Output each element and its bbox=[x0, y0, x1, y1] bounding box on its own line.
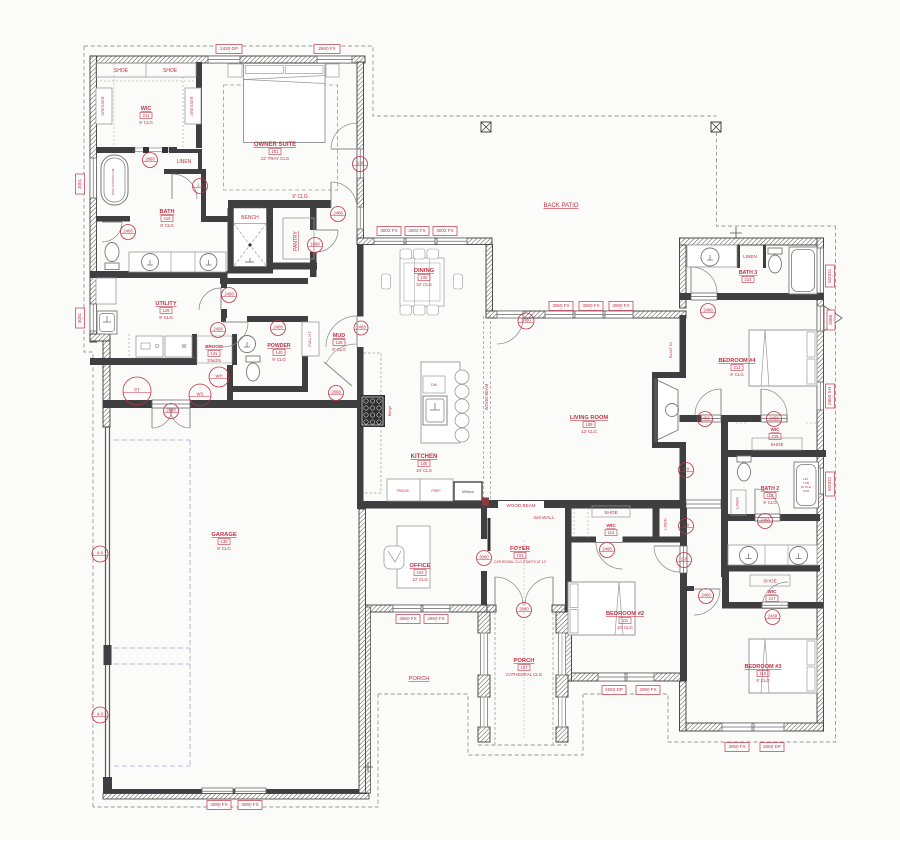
svg-text:BATH: BATH bbox=[159, 209, 174, 215]
svg-text:217: 217 bbox=[769, 596, 777, 601]
svg-text:9' CLG: 9' CLG bbox=[217, 546, 231, 551]
svg-text:129: 129 bbox=[163, 308, 171, 313]
svg-text:CATHEDRAL CLG: CATHEDRAL CLG bbox=[506, 672, 543, 677]
svg-text:FOYER: FOYER bbox=[510, 546, 531, 552]
svg-text:WIC: WIC bbox=[606, 523, 616, 529]
svg-text:2-8: 2-8 bbox=[683, 523, 690, 528]
svg-text:141: 141 bbox=[211, 351, 219, 356]
svg-text:OWNER SUITE: OWNER SUITE bbox=[254, 142, 296, 148]
svg-text:WH: WH bbox=[216, 374, 223, 379]
svg-text:BATH 2: BATH 2 bbox=[761, 486, 779, 492]
svg-text:2468: 2468 bbox=[769, 416, 779, 421]
svg-text:109: 109 bbox=[586, 422, 594, 427]
svg-text:2468: 2468 bbox=[700, 416, 710, 421]
svg-text:2468: 2468 bbox=[760, 518, 770, 523]
svg-text:4-0: 4-0 bbox=[97, 712, 104, 717]
svg-text:103: 103 bbox=[417, 570, 425, 575]
svg-text:4-0: 4-0 bbox=[97, 551, 104, 556]
svg-text:5-0: 5-0 bbox=[683, 467, 690, 472]
svg-text:9' CLG: 9' CLG bbox=[160, 223, 174, 228]
svg-text:2868: 2868 bbox=[166, 408, 176, 413]
svg-text:POWDER: POWDER bbox=[267, 343, 291, 349]
svg-text:SUR: SUR bbox=[803, 489, 810, 493]
svg-text:112: 112 bbox=[608, 530, 615, 535]
svg-text:9' CLG: 9' CLG bbox=[332, 347, 346, 352]
svg-text:2408: 2408 bbox=[123, 229, 133, 234]
svg-text:SHOE: SHOE bbox=[114, 68, 129, 74]
svg-text:SHOE: SHOE bbox=[770, 442, 783, 447]
svg-text:2468: 2468 bbox=[701, 593, 711, 598]
svg-text:BENCH: BENCH bbox=[241, 215, 259, 221]
svg-text:10' CLG: 10' CLG bbox=[617, 625, 634, 630]
svg-text:WOOD BEAM: WOOD BEAM bbox=[484, 383, 489, 410]
svg-text:9' CLG: 9' CLG bbox=[730, 372, 744, 377]
svg-text:107: 107 bbox=[521, 665, 529, 670]
svg-text:111: 111 bbox=[622, 618, 629, 623]
svg-text:BEDROOM #2: BEDROOM #2 bbox=[606, 611, 644, 617]
svg-text:MUD: MUD bbox=[333, 333, 345, 339]
svg-text:WIC: WIC bbox=[141, 106, 152, 112]
svg-text:2468: 2468 bbox=[602, 547, 612, 552]
svg-text:130: 130 bbox=[221, 539, 229, 544]
svg-text:WIC: WIC bbox=[771, 427, 781, 432]
svg-text:215: 215 bbox=[772, 434, 780, 439]
svg-text:106: 106 bbox=[421, 275, 429, 280]
svg-text:FREE STANDING TUB: FREE STANDING TUB bbox=[111, 168, 115, 195]
svg-text:PREP: PREP bbox=[431, 489, 441, 493]
svg-text:2668: 2668 bbox=[331, 390, 341, 395]
svg-text:OFFICE: OFFICE bbox=[409, 563, 430, 569]
svg-text:KITCHEN: KITCHEN bbox=[411, 454, 438, 460]
svg-text:WIC: WIC bbox=[768, 589, 778, 594]
svg-text:DRESSER: DRESSER bbox=[100, 96, 105, 115]
svg-text:9' CLG: 9' CLG bbox=[763, 500, 777, 505]
svg-text:2468: 2468 bbox=[333, 211, 343, 216]
svg-text:PORCH: PORCH bbox=[514, 658, 535, 664]
svg-text:140: 140 bbox=[276, 350, 284, 355]
svg-text:3080: 3080 bbox=[519, 607, 529, 612]
svg-text:10' CLG: 10' CLG bbox=[416, 468, 433, 473]
svg-text:WS: WS bbox=[197, 392, 204, 397]
svg-text:10' CLG: 10' CLG bbox=[412, 577, 429, 582]
svg-text:SHOE: SHOE bbox=[604, 510, 618, 516]
svg-text:BACK PATIO: BACK PATIO bbox=[543, 203, 578, 209]
svg-text:DINING: DINING bbox=[414, 268, 435, 274]
svg-text:PANTRY: PANTRY bbox=[293, 230, 299, 250]
svg-text:CATHEDRAL CLG STARTS AT 12': CATHEDRAL CLG STARTS AT 12' bbox=[494, 560, 547, 564]
svg-text:DW: DW bbox=[431, 383, 438, 387]
svg-text:D: D bbox=[155, 344, 159, 350]
svg-text:2468: 2468 bbox=[768, 614, 778, 619]
svg-text:116: 116 bbox=[760, 671, 767, 676]
svg-text:2468: 2468 bbox=[224, 292, 234, 297]
svg-text:211: 211 bbox=[143, 113, 150, 118]
svg-text:10' CLG: 10' CLG bbox=[416, 282, 433, 287]
svg-text:3080: 3080 bbox=[479, 555, 489, 560]
svg-text:BEDROOM #4: BEDROOM #4 bbox=[719, 358, 757, 364]
svg-text:GARAGE: GARAGE bbox=[211, 532, 237, 538]
svg-text:WOOD BEAM: WOOD BEAM bbox=[506, 503, 535, 508]
svg-text:2468: 2468 bbox=[356, 325, 366, 330]
svg-text:105: 105 bbox=[421, 461, 429, 466]
svg-text:SHOE: SHOE bbox=[763, 579, 777, 585]
svg-text:3'6x3'6: 3'6x3'6 bbox=[207, 358, 221, 363]
svg-text:213: 213 bbox=[734, 365, 742, 370]
svg-text:210: 210 bbox=[164, 216, 172, 221]
svg-text:LINEN: LINEN bbox=[743, 254, 757, 259]
svg-text:W: W bbox=[182, 344, 187, 350]
svg-text:101: 101 bbox=[517, 553, 525, 558]
svg-text:3060: 3060 bbox=[521, 318, 531, 323]
svg-text:PT: PT bbox=[134, 388, 140, 393]
svg-text:12' CLG: 12' CLG bbox=[581, 429, 598, 434]
svg-text:2408: 2408 bbox=[273, 325, 283, 330]
svg-text:LINEN: LINEN bbox=[735, 497, 740, 509]
svg-text:MWave: MWave bbox=[462, 490, 474, 494]
svg-text:FULL HT: FULL HT bbox=[308, 331, 312, 347]
svg-text:LINEN: LINEN bbox=[664, 518, 668, 529]
svg-text:2x6 WALL: 2x6 WALL bbox=[533, 515, 554, 520]
svg-text:SHOE: SHOE bbox=[163, 68, 178, 74]
svg-text:PORCH: PORCH bbox=[409, 676, 430, 682]
svg-text:BATH 3: BATH 3 bbox=[739, 270, 757, 276]
svg-text:LIVING ROOM: LIVING ROOM bbox=[570, 415, 608, 421]
svg-text:9' CLG: 9' CLG bbox=[272, 357, 286, 362]
svg-text:2-8: 2-8 bbox=[357, 161, 364, 166]
svg-text:214: 214 bbox=[745, 277, 753, 282]
svg-text:BUILT IN: BUILT IN bbox=[668, 342, 673, 358]
svg-text:9' CLG: 9' CLG bbox=[159, 315, 173, 320]
svg-text:2868: 2868 bbox=[145, 157, 155, 162]
svg-text:9' CLG: 9' CLG bbox=[139, 120, 153, 125]
svg-text:2468: 2468 bbox=[703, 308, 713, 313]
svg-text:201: 201 bbox=[272, 149, 280, 154]
svg-text:1668: 1668 bbox=[310, 242, 320, 247]
svg-text:FRIDGE: FRIDGE bbox=[397, 489, 411, 493]
svg-text:LINEN: LINEN bbox=[177, 159, 192, 165]
svg-text:2-8: 2-8 bbox=[197, 183, 204, 188]
svg-text:UTILITY: UTILITY bbox=[155, 301, 176, 307]
svg-text:Range: Range bbox=[388, 406, 392, 417]
svg-text:2-8: 2-8 bbox=[681, 557, 688, 562]
svg-text:12' TRAY CLG: 12' TRAY CLG bbox=[261, 156, 290, 161]
svg-text:BROOM: BROOM bbox=[205, 344, 223, 349]
svg-text:DRESSER: DRESSER bbox=[189, 96, 194, 115]
svg-text:9' CLG: 9' CLG bbox=[756, 678, 770, 683]
svg-text:2408: 2408 bbox=[213, 327, 223, 332]
svg-text:BEDROOM #3: BEDROOM #3 bbox=[745, 664, 782, 670]
svg-text:126: 126 bbox=[336, 340, 344, 345]
svg-text:9' CLG: 9' CLG bbox=[292, 194, 308, 200]
